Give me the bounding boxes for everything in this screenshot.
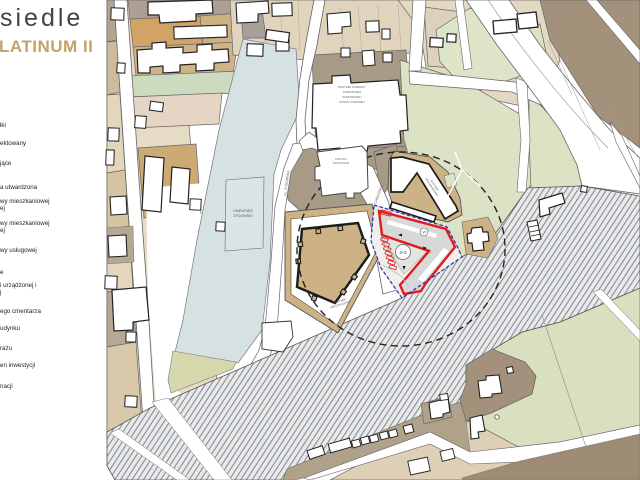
svg-text:CMENTARZ: CMENTARZ [233, 209, 254, 213]
svg-text:4+2: 4+2 [399, 250, 407, 255]
svg-text:PAWIARSKIE: PAWIARSKIE [333, 161, 350, 165]
svg-text:POWIATOWEJ: POWIATOWEJ [343, 90, 362, 94]
svg-text:PAŃSTWOWEJ: PAŃSTWOWEJ [342, 95, 362, 99]
svg-text:PARKING: PARKING [335, 157, 347, 161]
svg-text:VI: VI [422, 231, 425, 235]
svg-text:ŻYDOWSKI: ŻYDOWSKI [233, 213, 252, 218]
svg-text:BUDYNEK KOMENDY: BUDYNEK KOMENDY [338, 85, 366, 89]
